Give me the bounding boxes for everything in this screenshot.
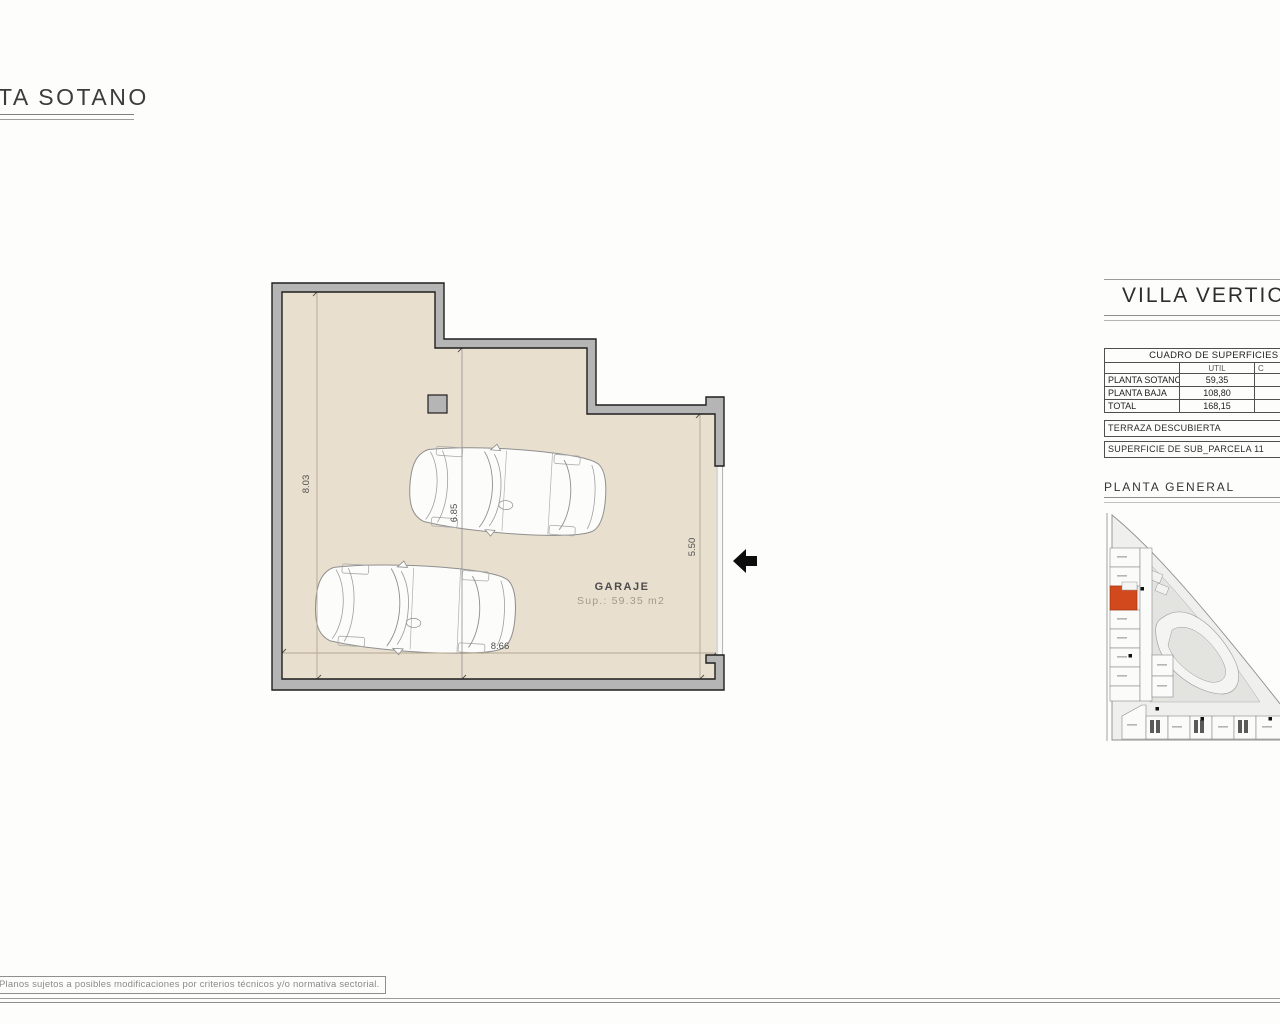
table-row: TOTAL 168,15 [1105,400,1280,413]
table-row: PLANTA SOTANO 59,35 [1105,374,1280,387]
page-title: TA SOTANO [0,84,149,111]
surfaces-table-title: CUADRO DE SUPERFICIES ( [1105,349,1280,363]
row-value: 168,15 [1180,400,1255,413]
footer-note: Planos sujetos a posibles modificaciones… [0,976,386,994]
parcel-strip-left [1110,548,1152,701]
dim-width-bottom: 8.66 [491,641,510,652]
row-value: 59,35 [1180,374,1255,387]
row-label: PLANTA SOTANO [1105,374,1180,387]
floorplan-drawing: 8.03 6.85 5.50 8.66 GARAJE Sup.: 59.35 m… [250,265,770,705]
drawing-sheet: TA SOTANO [0,0,1280,1024]
row-extra [1255,400,1280,413]
col-util: UTIL [1180,363,1255,374]
surfaces-table: CUADRO DE SUPERFICIES ( UTIL C PLANTA SO… [1104,348,1280,413]
col-next: C [1255,363,1280,374]
page-title-underline [0,114,134,120]
dim-door-right: 5.50 [687,538,698,557]
room-label: GARAJE [595,581,650,593]
bottom-rule [0,1002,1280,1003]
row-extra [1255,387,1280,400]
row-label: PLANTA BAJA [1105,387,1180,400]
table-row: PLANTA BAJA 108,80 [1105,387,1280,400]
panel-title-topline [1104,279,1280,280]
parcel-strip-mid [1152,655,1173,697]
row-value: 108,80 [1180,387,1255,400]
garage-door [715,466,724,655]
col-blank [1105,363,1180,374]
row-label: TOTAL [1105,400,1180,413]
site-plan-minimap [1100,503,1280,755]
bottom-rule [0,998,1280,999]
row-extra [1255,374,1280,387]
car-2 [313,556,518,661]
panel-title-underline [1104,315,1280,321]
dim-height-left: 8.03 [301,475,312,494]
panel-title: VILLA VERTICA [1122,284,1280,308]
parcela-box: SUPERFICIE DE SUB_PARCELA 11 [1104,441,1280,458]
dim-height-mid: 6.85 [449,504,460,523]
structural-column [428,395,447,413]
entrance-arrow-icon [733,549,757,573]
terraza-box: TERRAZA DESCUBIERTA [1104,420,1280,437]
parcel-annex [1122,582,1137,590]
room-area-label: Sup.: 59.35 m2 [577,595,665,607]
planta-general-label: PLANTA GENERAL [1104,480,1235,494]
